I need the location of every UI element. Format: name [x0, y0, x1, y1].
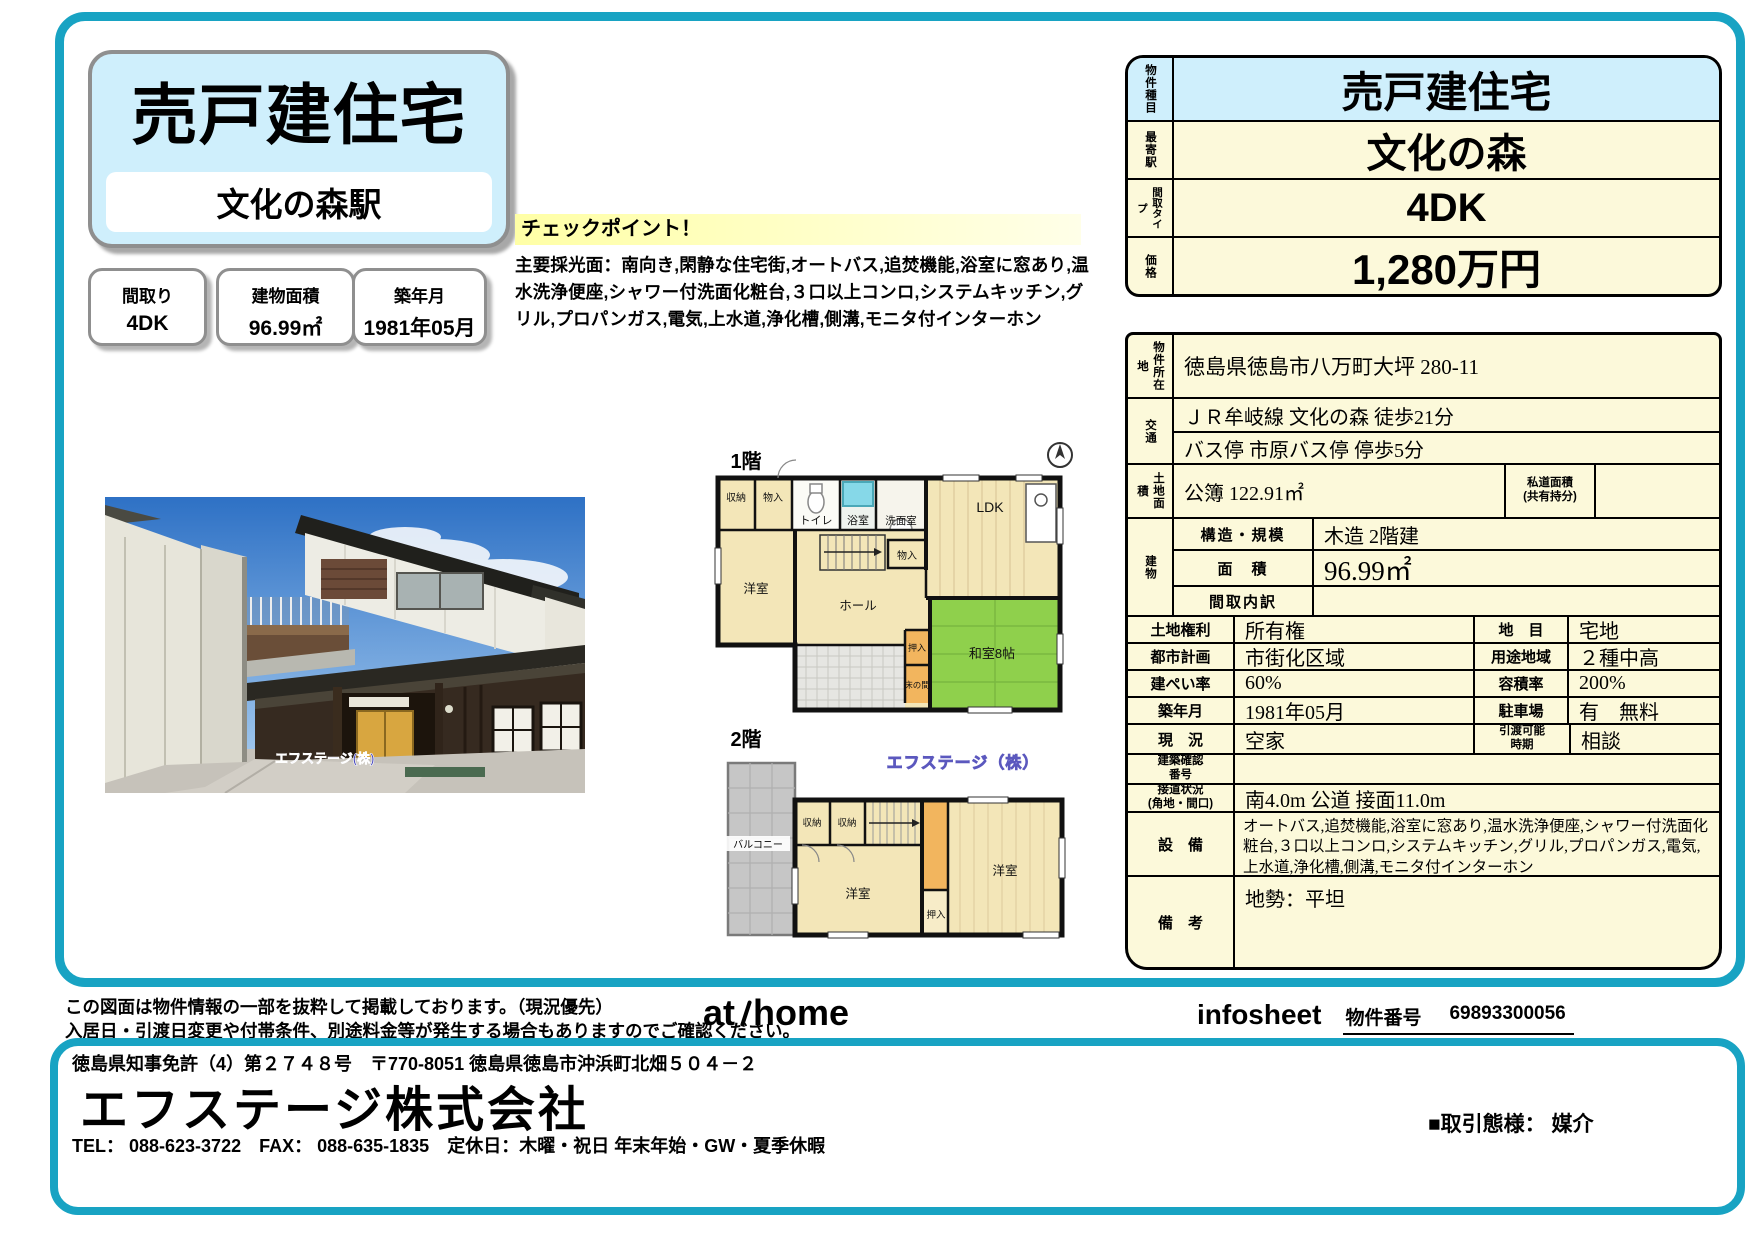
- row-value: [1596, 465, 1719, 517]
- table-row-confirm: 建築確認 番号: [1128, 753, 1719, 783]
- row-label: 物件所在地: [1128, 335, 1174, 397]
- table-row: 物件種目 売戸建住宅: [1128, 58, 1719, 120]
- table-row: 価格 1,280万円: [1128, 236, 1719, 294]
- spec-label: 建物面積: [219, 282, 352, 307]
- company-contact: TEL： 088-623-3722 FAX： 088-635-1835 定休日：…: [72, 1132, 825, 1158]
- row-label: 私道面積 (共有持分): [1504, 465, 1596, 517]
- stairs: [820, 535, 885, 570]
- row-label: 建築確認 番号: [1128, 755, 1235, 783]
- room-label: 押入: [926, 909, 946, 921]
- left-building: [105, 515, 247, 787]
- row-value: 地勢：平坦: [1235, 877, 1719, 967]
- toilet-icon: [808, 491, 824, 513]
- spec-label: 築年月: [355, 282, 484, 307]
- checkpoint-title: チェックポイント！: [515, 214, 1081, 245]
- table-row-location: 物件所在地 徳島県徳島市八万町大坪 280-11: [1128, 335, 1719, 397]
- brand-box: 売戸建住宅 文化の森駅: [88, 50, 510, 248]
- row-value: 木造 2階建: [1314, 519, 1719, 549]
- balcony: [247, 597, 355, 677]
- room-label: 物入: [897, 549, 917, 562]
- spec-box-area: 建物面積 96.99㎡: [216, 268, 355, 346]
- row-label: 現 況: [1128, 725, 1235, 753]
- row-value: [1235, 755, 1719, 783]
- room-label: 和室8帖: [969, 646, 1015, 661]
- entrance-tile: [795, 645, 905, 710]
- photo-watermark: エフステージ(株): [275, 751, 374, 766]
- row-label: 地 目: [1475, 617, 1569, 642]
- disclaimer-line1: この図面は物件情報の一部を抜粋して掲載しております。（現況優先）: [65, 994, 613, 1019]
- row-label: 駐車場: [1475, 698, 1569, 723]
- spec-box-madori: 間取り 4DK: [88, 268, 207, 346]
- table-row-road: 接道状況 (角地・間口) 南4.0m 公道 接面11.0m: [1128, 783, 1719, 811]
- row-value: ＪＲ牟岐線 文化の森 徒歩21分: [1174, 399, 1719, 431]
- checkpoint-body: 主要採光面：南向き,閑静な住宅街,オートバス,追焚機能,浴室に窓あり,温水洗浄便…: [515, 252, 1089, 333]
- row-label: 用途地域: [1475, 644, 1569, 669]
- deal-type: ■取引態様： 媒介: [1428, 1108, 1594, 1138]
- spec-value: 1981年05月: [355, 312, 484, 342]
- row-label: 容積率: [1475, 671, 1569, 696]
- plan-watermark: エフステージ（株）: [887, 753, 1040, 772]
- floor2-label: 2階: [730, 728, 761, 751]
- row-value: 相談: [1569, 725, 1719, 753]
- table-row: 最寄駅 文化の森: [1128, 120, 1719, 178]
- row-label: 土地権利: [1128, 617, 1235, 642]
- athome-logo: at home: [703, 992, 849, 1034]
- room-label: トイレ: [800, 515, 833, 527]
- spec-value: 96.99㎡: [219, 312, 352, 342]
- row-label: 土地面積: [1128, 465, 1174, 517]
- row-value: 有 無料: [1569, 698, 1719, 723]
- table-row-notes: 備 考 地勢：平坦: [1128, 875, 1719, 967]
- room-label: LDK: [976, 499, 1004, 515]
- detail-table: 物件所在地 徳島県徳島市八万町大坪 280-11 交通 ＪＲ牟岐線 文化の森 徒…: [1125, 332, 1722, 970]
- bathtub: [843, 482, 873, 506]
- table-row-equipment: 設 備 オートバス,追焚機能,浴室に窓あり,温水洗浄便座,シャワー付洗面化粧台,…: [1128, 811, 1719, 875]
- row-value: 文化の森: [1174, 122, 1719, 178]
- row-value: 売戸建住宅: [1174, 58, 1719, 120]
- table-row-access: 交通 ＪＲ牟岐線 文化の森 徒歩21分 バス停 市原バス停 停歩5分: [1128, 397, 1719, 463]
- athome-logo-home: home: [753, 992, 849, 1034]
- room-label: 収納: [837, 817, 856, 829]
- row-value: バス停 市原バス停 停歩5分: [1174, 433, 1719, 463]
- row-label: 設 備: [1128, 813, 1235, 875]
- table-row: 現 況 空家 引渡可能 時期 相談: [1128, 723, 1719, 753]
- floorplan-1f: 1階 収納 物入 トイレ 浴室 洗面室 洋室 物入 LDK ホール 押入 和室8…: [628, 438, 1088, 714]
- room-label: 洗面室: [885, 514, 917, 527]
- room-label: 物入: [763, 491, 783, 504]
- row-value: オートバス,追焚機能,浴室に窓あり,温水洗浄便座,シャワー付洗面化粧台,３口以上…: [1235, 813, 1719, 875]
- property-number-value: 69893300056: [1449, 1003, 1565, 1030]
- row-label: 交通: [1128, 399, 1174, 463]
- room-label: 洋室: [992, 863, 1017, 878]
- row-value: 96.99㎡: [1314, 551, 1719, 585]
- row-label: 築年月: [1128, 698, 1235, 723]
- page-title: 売戸建住宅: [92, 62, 506, 158]
- table-row: 間取タイプ 4DK: [1128, 178, 1719, 236]
- table-row: 都市計画 市街化区域 用途地域 ２種中高: [1128, 642, 1719, 669]
- athome-logo-slash-icon: [740, 1000, 752, 1027]
- row-value: 4DK: [1174, 180, 1719, 236]
- room-label: 床の間: [904, 680, 930, 690]
- row-value: 徳島県徳島市八万町大坪 280-11: [1174, 335, 1719, 397]
- row-label: 物件種目: [1128, 58, 1174, 120]
- spec-box-built: 築年月 1981年05月: [352, 268, 487, 346]
- floorplan-2f: バルコニー 2階 エフステージ（株） 収納 収納 洋室 押入 洋室: [628, 718, 1088, 948]
- row-value: ２種中高: [1569, 644, 1719, 669]
- infosheet-wordmark: infosheet: [1197, 999, 1321, 1031]
- row-label: 面 積: [1174, 551, 1314, 585]
- property-photo: エフステージ(株): [105, 497, 585, 793]
- row-value: 60%: [1235, 671, 1475, 696]
- property-number-label: 物件番号: [1345, 1003, 1421, 1030]
- row-label: 接道状況 (角地・間口): [1128, 785, 1235, 811]
- company-name: エフステージ株式会社: [80, 1070, 589, 1140]
- compass-icon: [1048, 443, 1072, 467]
- summary-table: 物件種目 売戸建住宅 最寄駅 文化の森 間取タイプ 4DK 価格 1,280万円: [1125, 55, 1722, 297]
- row-value: 空家: [1235, 725, 1475, 753]
- room-label: 洋室: [743, 581, 768, 596]
- table-row-building: 建物 構造・規模 木造 2階建 面 積 96.99㎡ 間取内訳: [1128, 517, 1719, 615]
- row-label: 備 考: [1128, 877, 1235, 967]
- row-label: 構造・規模: [1174, 519, 1314, 549]
- row-value: [1314, 587, 1719, 615]
- row-value: 1981年05月: [1235, 698, 1475, 723]
- row-label: 価格: [1128, 238, 1174, 294]
- room-label: ホール: [839, 599, 877, 613]
- table-row-land: 土地面積 公簿 122.91㎡ 私道面積 (共有持分): [1128, 463, 1719, 517]
- table-row: 築年月 1981年05月 駐車場 有 無料: [1128, 696, 1719, 723]
- row-label: 都市計画: [1128, 644, 1235, 669]
- infosheet-page: 売戸建住宅 文化の森駅 間取り 4DK 建物面積 96.99㎡ 築年月 1981…: [0, 0, 1755, 1240]
- row-label: 建ぺい率: [1128, 671, 1235, 696]
- row-value: 公簿 122.91㎡: [1174, 465, 1504, 517]
- row-value: 200%: [1569, 671, 1719, 696]
- row-label: 建物: [1128, 519, 1174, 615]
- room-label: 収納: [726, 491, 746, 504]
- row-label: 間取タイプ: [1128, 180, 1174, 236]
- athome-logo-at: at: [703, 992, 735, 1034]
- room-label: バルコニー: [733, 839, 783, 851]
- floor1-label: 1階: [730, 450, 761, 473]
- row-value: 市街化区域: [1235, 644, 1475, 669]
- row-label: 間取内訳: [1174, 587, 1314, 615]
- property-number: 物件番号 69893300056: [1343, 1003, 1573, 1035]
- spec-value: 4DK: [91, 312, 204, 336]
- row-label: 最寄駅: [1128, 122, 1174, 178]
- room-label: 浴室: [847, 513, 869, 527]
- row-value: 1,280万円: [1174, 238, 1719, 294]
- row-value: 宅地: [1569, 617, 1719, 642]
- spec-label: 間取り: [91, 282, 204, 307]
- room-label: 押入: [908, 642, 926, 653]
- infosheet-line: infosheet 物件番号 69893300056: [1197, 999, 1574, 1035]
- table-row: 建ぺい率 60% 容積率 200%: [1128, 669, 1719, 696]
- room-label: 洋室: [845, 886, 870, 901]
- table-row: 土地権利 所有権 地 目 宅地: [1128, 615, 1719, 642]
- row-value: 南4.0m 公道 接面11.0m: [1235, 785, 1719, 811]
- row-value: 所有権: [1235, 617, 1475, 642]
- room-label: 収納: [802, 817, 821, 829]
- station-name: 文化の森駅: [106, 172, 492, 232]
- row-label: 引渡可能 時期: [1475, 725, 1569, 753]
